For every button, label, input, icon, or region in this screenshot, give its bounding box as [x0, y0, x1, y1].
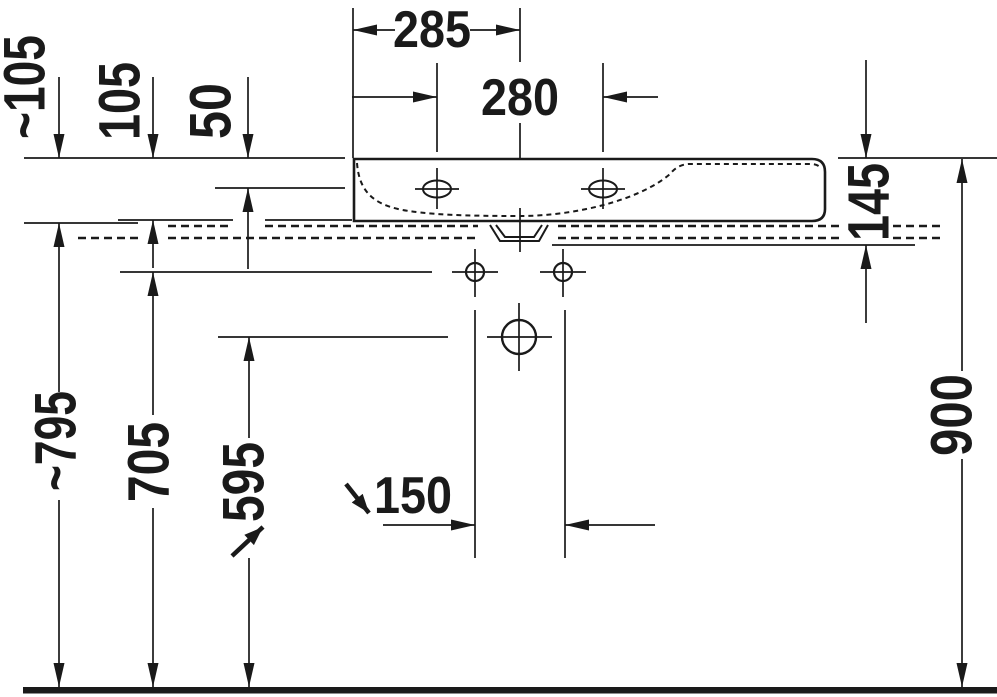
dim-105-label: 105: [88, 62, 153, 140]
dim-approx105-label: ~105: [0, 35, 58, 139]
dim-150-label: 150: [374, 467, 452, 525]
dim-approx795-label: ~795: [24, 391, 89, 491]
washbasin-dimension-drawing: 285 280 150 ~105 105 50 145 ~795 705 595…: [0, 0, 997, 697]
dim-145-label: 145: [837, 163, 902, 241]
dim-705-label: 705: [117, 422, 182, 502]
dim-50-label: 50: [179, 83, 244, 139]
dim-285-label: 285: [393, 1, 471, 59]
dim-900-label: 900: [920, 374, 985, 456]
dim-595-label: 595: [212, 442, 277, 522]
technical-drawing-canvas: 285 280 150 ~105 105 50 145 ~795 705 595…: [0, 0, 997, 697]
dim-280-label: 280: [481, 69, 559, 127]
floor-line: [23, 687, 997, 694]
